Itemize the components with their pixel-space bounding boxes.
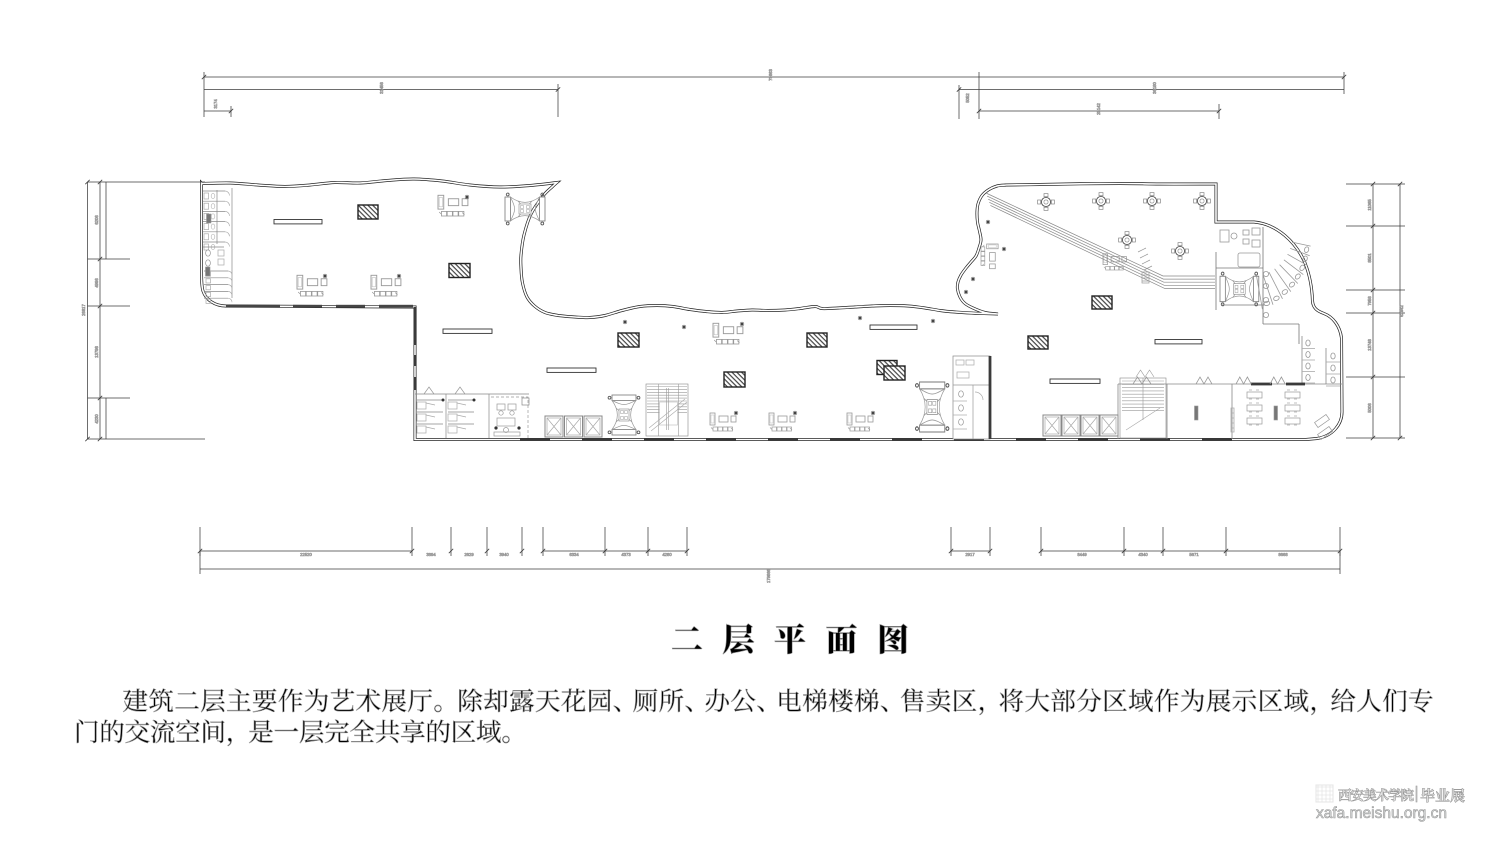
svg-text:79863: 79863 — [768, 69, 773, 81]
svg-text:6334: 6334 — [569, 552, 579, 557]
svg-text:2629: 2629 — [464, 552, 474, 557]
svg-text:7958: 7958 — [1367, 296, 1372, 306]
svg-text:25142: 25142 — [1096, 103, 1101, 115]
svg-text:5008: 5008 — [1367, 403, 1372, 413]
svg-text:13798: 13798 — [94, 346, 99, 358]
svg-text:26817: 26817 — [81, 304, 86, 316]
svg-text:3894: 3894 — [426, 552, 436, 557]
svg-text:5052: 5052 — [965, 93, 970, 103]
svg-text:2917: 2917 — [965, 552, 975, 557]
svg-text:11065: 11065 — [1367, 199, 1372, 211]
svg-text:4340: 4340 — [1138, 552, 1148, 557]
svg-text:4280: 4280 — [662, 552, 672, 557]
svg-text:xafa.meishu.org.cn: xafa.meishu.org.cn — [1316, 805, 1447, 822]
svg-text:36180: 36180 — [1152, 82, 1157, 94]
svg-text:4998: 4998 — [94, 278, 99, 288]
svg-text:13748: 13748 — [1367, 339, 1372, 351]
svg-text:3940: 3940 — [499, 552, 509, 557]
svg-text:5671: 5671 — [1189, 552, 1199, 557]
svg-text:22520: 22520 — [300, 552, 312, 557]
svg-text:6208: 6208 — [94, 215, 99, 225]
svg-text:62942: 62942 — [1399, 305, 1404, 317]
svg-text:8501: 8501 — [1367, 253, 1372, 263]
svg-text:31456: 31456 — [379, 82, 384, 94]
svg-text:8449: 8449 — [1077, 552, 1087, 557]
svg-text:4230: 4230 — [94, 414, 99, 424]
svg-text:8668: 8668 — [1278, 552, 1288, 557]
svg-text:4373: 4373 — [621, 552, 631, 557]
svg-text:179866: 179866 — [766, 568, 771, 583]
svg-text:3174: 3174 — [213, 99, 218, 109]
